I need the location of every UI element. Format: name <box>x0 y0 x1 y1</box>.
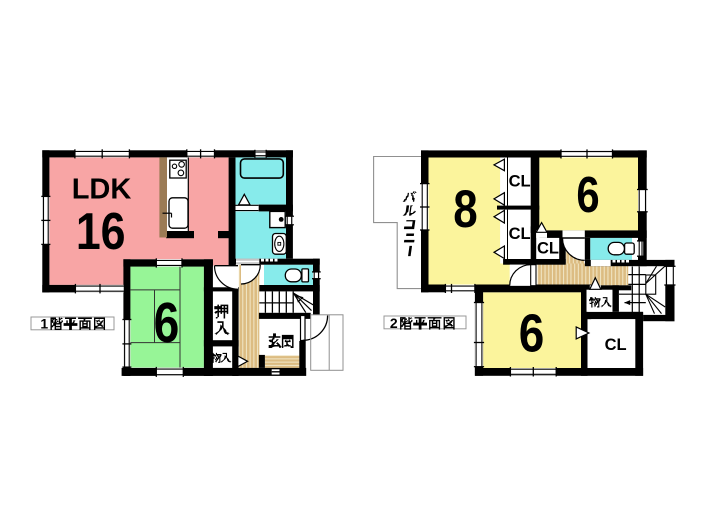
svg-text:6: 6 <box>519 303 545 363</box>
svg-text:1: 1 <box>40 315 48 331</box>
svg-text:CL: CL <box>509 173 531 191</box>
svg-text:CL: CL <box>509 225 531 243</box>
svg-text:2: 2 <box>390 315 398 331</box>
svg-text:CL: CL <box>537 240 559 258</box>
svg-text:LDK: LDK <box>72 173 132 205</box>
svg-text:8: 8 <box>453 180 477 239</box>
svg-text:6: 6 <box>154 290 180 354</box>
svg-text:6: 6 <box>576 166 599 223</box>
svg-text:CL: CL <box>605 336 627 354</box>
svg-text:16: 16 <box>76 203 126 261</box>
